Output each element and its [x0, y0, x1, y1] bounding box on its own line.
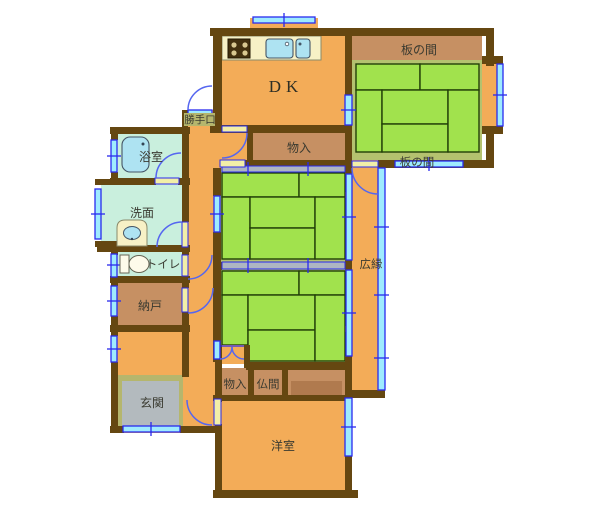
wall	[345, 260, 352, 270]
room-label-monoire-top: 物入	[287, 141, 311, 155]
stove-icon	[228, 39, 250, 58]
door-leaf	[182, 222, 188, 247]
tatami-mat	[248, 330, 315, 361]
wall	[345, 168, 352, 174]
tatami-mats-ne	[356, 64, 479, 152]
wall	[111, 362, 118, 428]
tatami-mats-middle	[222, 173, 345, 259]
room-label-dk: DK	[269, 77, 304, 96]
tatami-mat	[222, 197, 250, 259]
tatami-mat	[315, 197, 345, 259]
washbasin-drain	[131, 238, 133, 240]
faucet-dot	[285, 42, 289, 46]
floor-plan-page: DK 板の間 板の間 物入 勝手口 浴室 洗面 トイレ 納戸 玄関 物入 仏間 …	[0, 0, 600, 531]
tatami-mat	[315, 295, 345, 361]
tatami-mat	[382, 124, 448, 152]
wall	[215, 424, 222, 490]
wall	[248, 368, 254, 398]
wall	[110, 178, 156, 185]
toilet-tank	[120, 255, 129, 273]
tatami-mat	[448, 90, 479, 152]
door-leaf	[182, 288, 188, 312]
wall	[379, 160, 385, 168]
kitchen-fixtures	[222, 36, 321, 60]
tatami-mat	[250, 228, 315, 259]
kitchen-sink-icon	[266, 39, 293, 58]
wall	[110, 127, 190, 134]
room-label-itanoma-top: 板の間	[401, 43, 437, 57]
door-leaf	[220, 160, 245, 167]
wall	[379, 390, 385, 398]
door-leaf	[214, 399, 221, 425]
wall	[345, 356, 352, 368]
wall	[345, 456, 352, 498]
faucet-dot	[299, 43, 302, 46]
tatami-mat	[299, 271, 345, 295]
wall	[213, 168, 221, 196]
tatami-mat	[222, 173, 299, 197]
wall	[111, 277, 118, 286]
wall	[247, 133, 253, 162]
wall	[178, 178, 190, 185]
wall	[182, 312, 189, 377]
stove-burner	[231, 50, 236, 55]
tatami-mat	[382, 90, 448, 124]
wall	[213, 232, 221, 262]
bathtub-drain	[142, 143, 145, 146]
door-leaf	[352, 161, 378, 167]
wall	[182, 127, 189, 222]
stove-burner	[242, 50, 247, 55]
window	[378, 168, 385, 390]
wall	[111, 127, 118, 140]
wall	[246, 362, 352, 370]
tatami-mat	[420, 64, 479, 90]
wall	[482, 56, 503, 64]
room-label-bathroom: 浴室	[139, 149, 163, 164]
floor-plan-svg: DK 板の間 板の間 物入 勝手口 浴室 洗面 トイレ 納戸 玄関 物入 仏間 …	[0, 0, 600, 531]
wall	[282, 368, 288, 398]
wall	[110, 276, 190, 283]
wall	[213, 490, 358, 498]
tatami-mat	[356, 90, 382, 152]
room-label-monoire-lower: 物入	[224, 377, 247, 391]
tatami-mat	[299, 173, 345, 197]
tatami-mat	[250, 197, 315, 228]
room-label-washroom: 洗面	[130, 206, 154, 220]
room-label-nando: 納戸	[138, 299, 162, 313]
tatami-mat	[248, 295, 315, 330]
tatami-mat	[356, 64, 420, 90]
tatami-mat	[222, 271, 299, 295]
door-leaf	[155, 178, 179, 184]
room-label-yoshitsu: 洋室	[271, 438, 295, 453]
door-leaf	[222, 126, 247, 132]
room-label-butsuma: 仏間	[257, 378, 280, 391]
door-leaf	[182, 255, 188, 276]
fusuma-strip	[222, 262, 345, 269]
room-label-genkan: 玄関	[140, 395, 164, 410]
wall	[110, 426, 124, 433]
kitchen-sink-icon	[296, 39, 310, 58]
wall	[213, 395, 352, 401]
wall	[110, 325, 190, 332]
wall	[213, 262, 222, 270]
tatami-mat	[222, 295, 248, 345]
room-label-itanoma-lower: 板の間	[400, 155, 435, 169]
oshiire-inner	[291, 381, 342, 395]
stove-burner	[231, 42, 236, 47]
room-label-hiroen: 広縁	[360, 257, 383, 271]
wall	[111, 316, 118, 336]
washbasin-bowl	[124, 227, 141, 240]
sliding-door	[214, 341, 220, 359]
room-label-katteguchi: 勝手口	[184, 113, 216, 126]
tatami-mats-bottom	[216, 271, 345, 364]
room-label-toilet: トイレ	[146, 259, 181, 271]
stove-burner	[242, 42, 247, 47]
wall	[345, 28, 352, 95]
door-arc	[188, 86, 212, 110]
